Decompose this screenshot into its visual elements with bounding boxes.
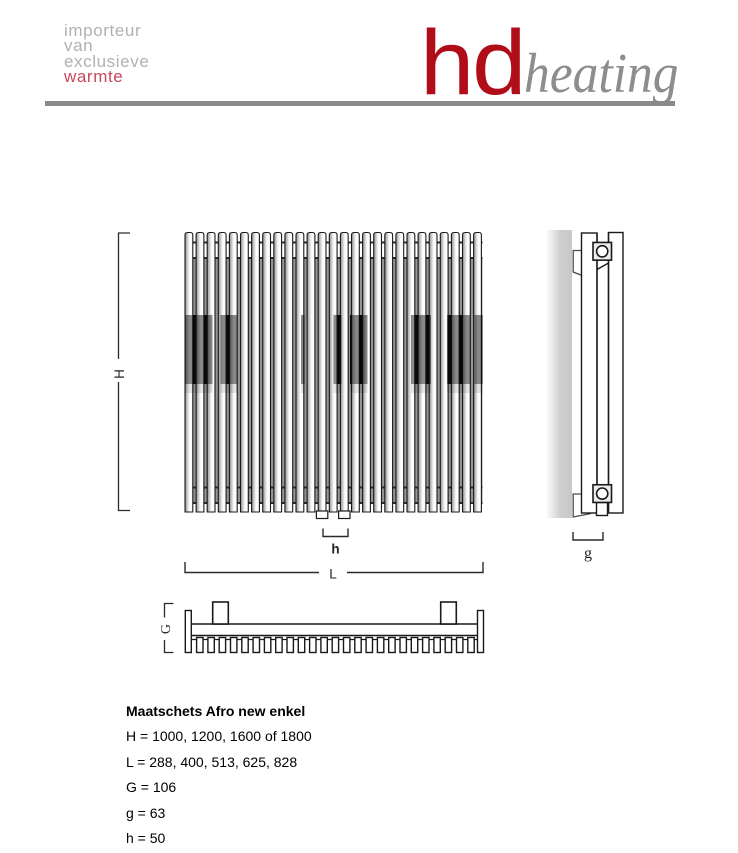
- svg-text:L: L: [329, 567, 337, 582]
- svg-text:H: H: [112, 369, 127, 379]
- svg-text:G: G: [159, 624, 174, 634]
- svg-text:h: h: [331, 542, 339, 557]
- svg-text:g: g: [584, 545, 592, 562]
